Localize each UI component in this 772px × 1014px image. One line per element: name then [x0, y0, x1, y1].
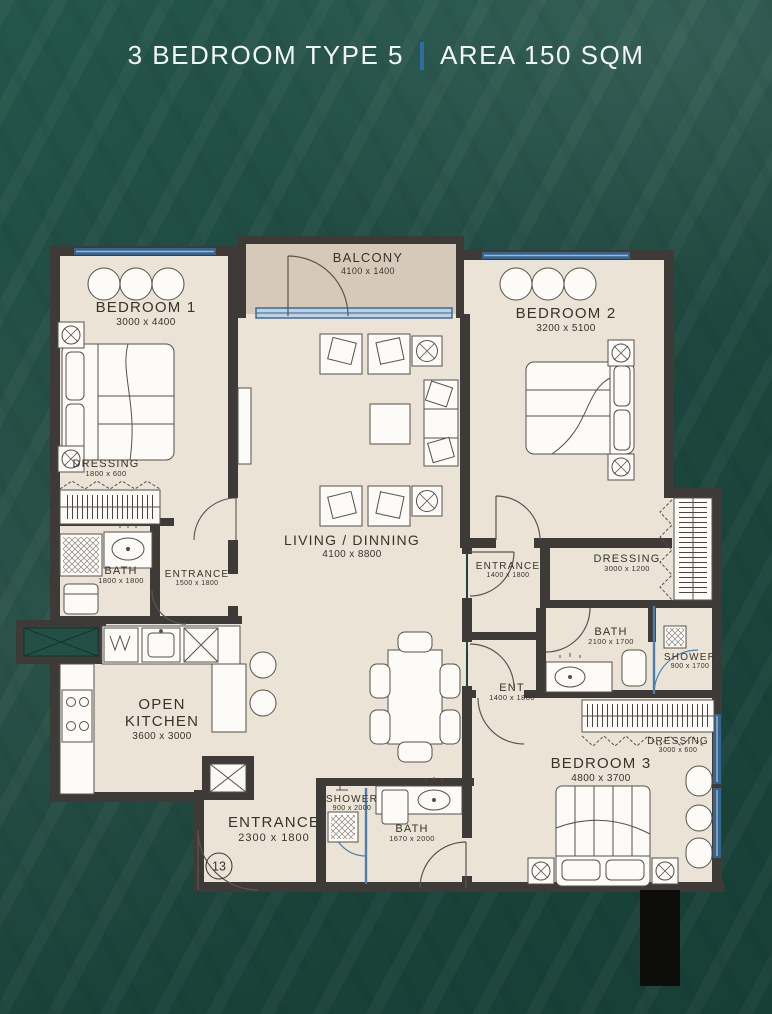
area-text: AREA 150 SQM: [440, 40, 644, 71]
room-label-bedroom3: BEDROOM 3 4800 x 3700: [551, 756, 652, 784]
room-label-dressing1: DRESSING 1800 x 600: [72, 458, 139, 479]
room-label-bath2: BATH 2100 x 1700: [588, 626, 634, 647]
room-label-shower-main: SHOWER 900 x 2000: [326, 794, 378, 813]
room-label-balcony: BALCONY 4100 x 1400: [333, 251, 404, 276]
floor-plan-drawing: [0, 0, 772, 1014]
room-label-living-dining: LIVING / DINNING 4100 x 8800: [284, 533, 420, 560]
unit-number-badge: 13: [206, 853, 233, 880]
page-title: 3 BEDROOM TYPE 5 AREA 150 SQM: [0, 40, 772, 71]
room-label-bedroom1: BEDROOM 1 3000 x 4400: [96, 300, 197, 328]
room-label-ent: ENT 1400 x 1800: [489, 682, 535, 703]
room-label-dressing2: DRESSING 3000 x 1200: [593, 553, 660, 574]
room-label-bedroom2: BEDROOM 2 3200 x 5100: [516, 306, 617, 334]
room-label-entrance1: ENTRANCE 1500 x 1800: [165, 569, 230, 588]
plan-type-text: 3 BEDROOM TYPE 5: [128, 40, 404, 71]
room-label-open-kitchen: OPEN KITCHEN 3600 x 3000: [116, 697, 208, 742]
room-label-bath-main: BATH 1670 x 2000: [389, 823, 435, 844]
room-label-entrance-main: ENTRANCE 2300 x 1800: [228, 815, 320, 844]
room-label-dressing3: DRESSING 3000 x 600: [647, 736, 709, 755]
room-label-bath1: BATH 1800 x 1800: [98, 565, 144, 586]
title-divider: [420, 42, 424, 70]
room-label-shower2: SHOWER 900 x 1700: [664, 652, 716, 671]
room-label-entrance2: ENTRANCE 1400 x 1800: [476, 561, 541, 580]
floor-plan-page: 3 BEDROOM TYPE 5 AREA 150 SQM: [0, 0, 772, 1014]
